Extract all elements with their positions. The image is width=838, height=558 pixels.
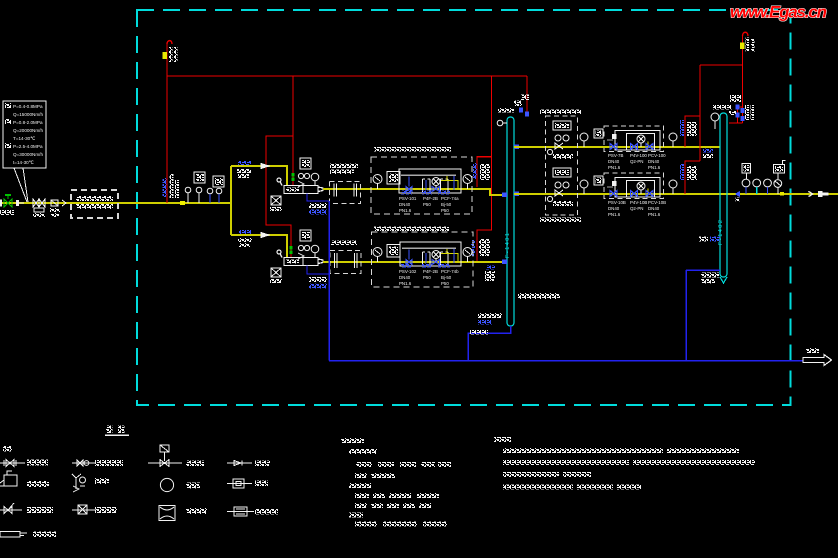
svg-text:PN1.6: PN1.6: [648, 212, 661, 217]
svg-text:PCV-100: PCV-100: [648, 153, 666, 158]
svg-text:F-1401: F-1401: [505, 232, 511, 258]
svg-text:DN40: DN40: [648, 206, 660, 211]
svg-text:P4F-2B: P4F-2B: [423, 269, 438, 274]
svg-text:P50: P50: [423, 202, 431, 207]
svg-text:P=0.8-2.0MPa: P=0.8-2.0MPa: [13, 120, 43, 125]
svg-text:P50: P50: [441, 281, 449, 286]
svg-text:P4V-100: P4V-100: [630, 153, 647, 158]
svg-text:www.Egas.cn: www.Egas.cn: [730, 3, 827, 22]
svg-text:Bj-50: Bj-50: [441, 275, 452, 280]
svg-text:Bj-50: Bj-50: [441, 202, 452, 207]
svg-text:P50: P50: [441, 208, 449, 213]
svg-text:PCF-74a: PCF-74a: [441, 196, 459, 201]
svg-text:PCV-10B: PCV-10B: [648, 200, 666, 205]
svg-text:P=2.5-4.0MPa: P=2.5-4.0MPa: [13, 144, 43, 149]
svg-text:P=0.4-0.8MPa: P=0.4-0.8MPa: [13, 104, 43, 109]
svg-text:DN40: DN40: [608, 206, 620, 211]
svg-text:P4F-2B: P4F-2B: [423, 196, 438, 201]
svg-text:PSV-102: PSV-102: [399, 269, 417, 274]
svg-text:PN1.6: PN1.6: [648, 165, 661, 170]
svg-text:Q2-PN: Q2-PN: [630, 206, 643, 211]
svg-text:PSV-7B: PSV-7B: [608, 153, 623, 158]
svg-text:PN1.6: PN1.6: [399, 281, 412, 286]
svg-text:PSV-101: PSV-101: [399, 196, 417, 201]
svg-text:T=14-30℃: T=14-30℃: [13, 136, 36, 141]
svg-text:Q=20000Nm/h: Q=20000Nm/h: [13, 128, 43, 133]
svg-text:DN40: DN40: [399, 275, 411, 280]
svg-text:t=14-30℃: t=14-30℃: [13, 160, 35, 165]
svg-text:PN1.6: PN1.6: [399, 208, 412, 213]
svg-text:PSV-10B: PSV-10B: [608, 200, 626, 205]
svg-text:DN40: DN40: [399, 202, 411, 207]
svg-text:P50: P50: [423, 275, 431, 280]
svg-text:PCF-74b: PCF-74b: [441, 269, 459, 274]
svg-text:Q2-PN: Q2-PN: [630, 159, 643, 164]
svg-text:P4V-10B: P4V-10B: [630, 200, 647, 205]
svg-text:PN1.6: PN1.6: [608, 165, 621, 170]
svg-text:Q=15000Nm/h: Q=15000Nm/h: [13, 112, 43, 117]
svg-text:DN40: DN40: [648, 159, 660, 164]
svg-text:DN40: DN40: [608, 159, 620, 164]
svg-text:Q=30000Nm/h: Q=30000Nm/h: [13, 152, 43, 157]
svg-text:PN1.6: PN1.6: [608, 212, 621, 217]
